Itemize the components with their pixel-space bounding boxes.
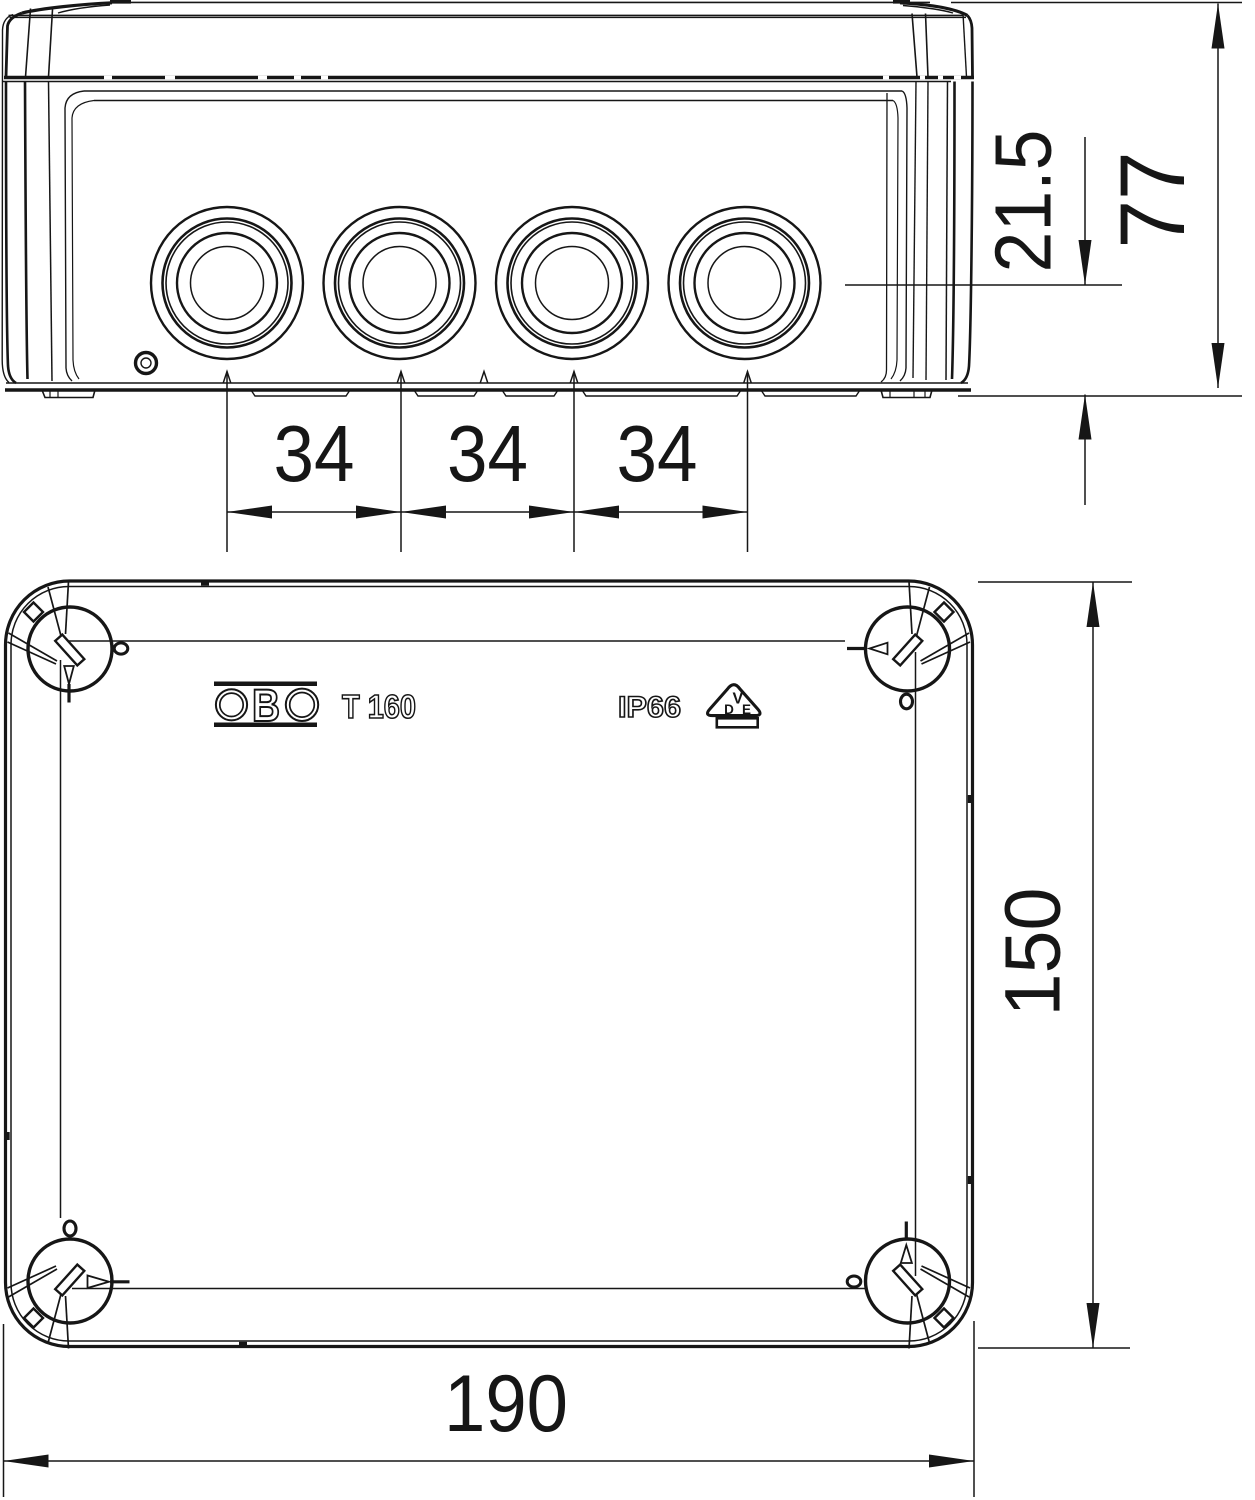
svg-text:34: 34 bbox=[274, 409, 355, 498]
svg-text:150: 150 bbox=[988, 888, 1077, 1017]
svg-text:77: 77 bbox=[1102, 152, 1204, 249]
svg-text:190: 190 bbox=[444, 1359, 568, 1449]
svg-text:T 160: T 160 bbox=[342, 688, 416, 725]
svg-text:E: E bbox=[742, 702, 751, 717]
svg-text:34: 34 bbox=[447, 409, 528, 498]
svg-text:D: D bbox=[724, 702, 734, 717]
svg-text:IP66: IP66 bbox=[618, 691, 681, 724]
svg-text:B: B bbox=[252, 680, 280, 731]
svg-text:21.5: 21.5 bbox=[979, 130, 1068, 273]
svg-text:34: 34 bbox=[617, 409, 698, 498]
